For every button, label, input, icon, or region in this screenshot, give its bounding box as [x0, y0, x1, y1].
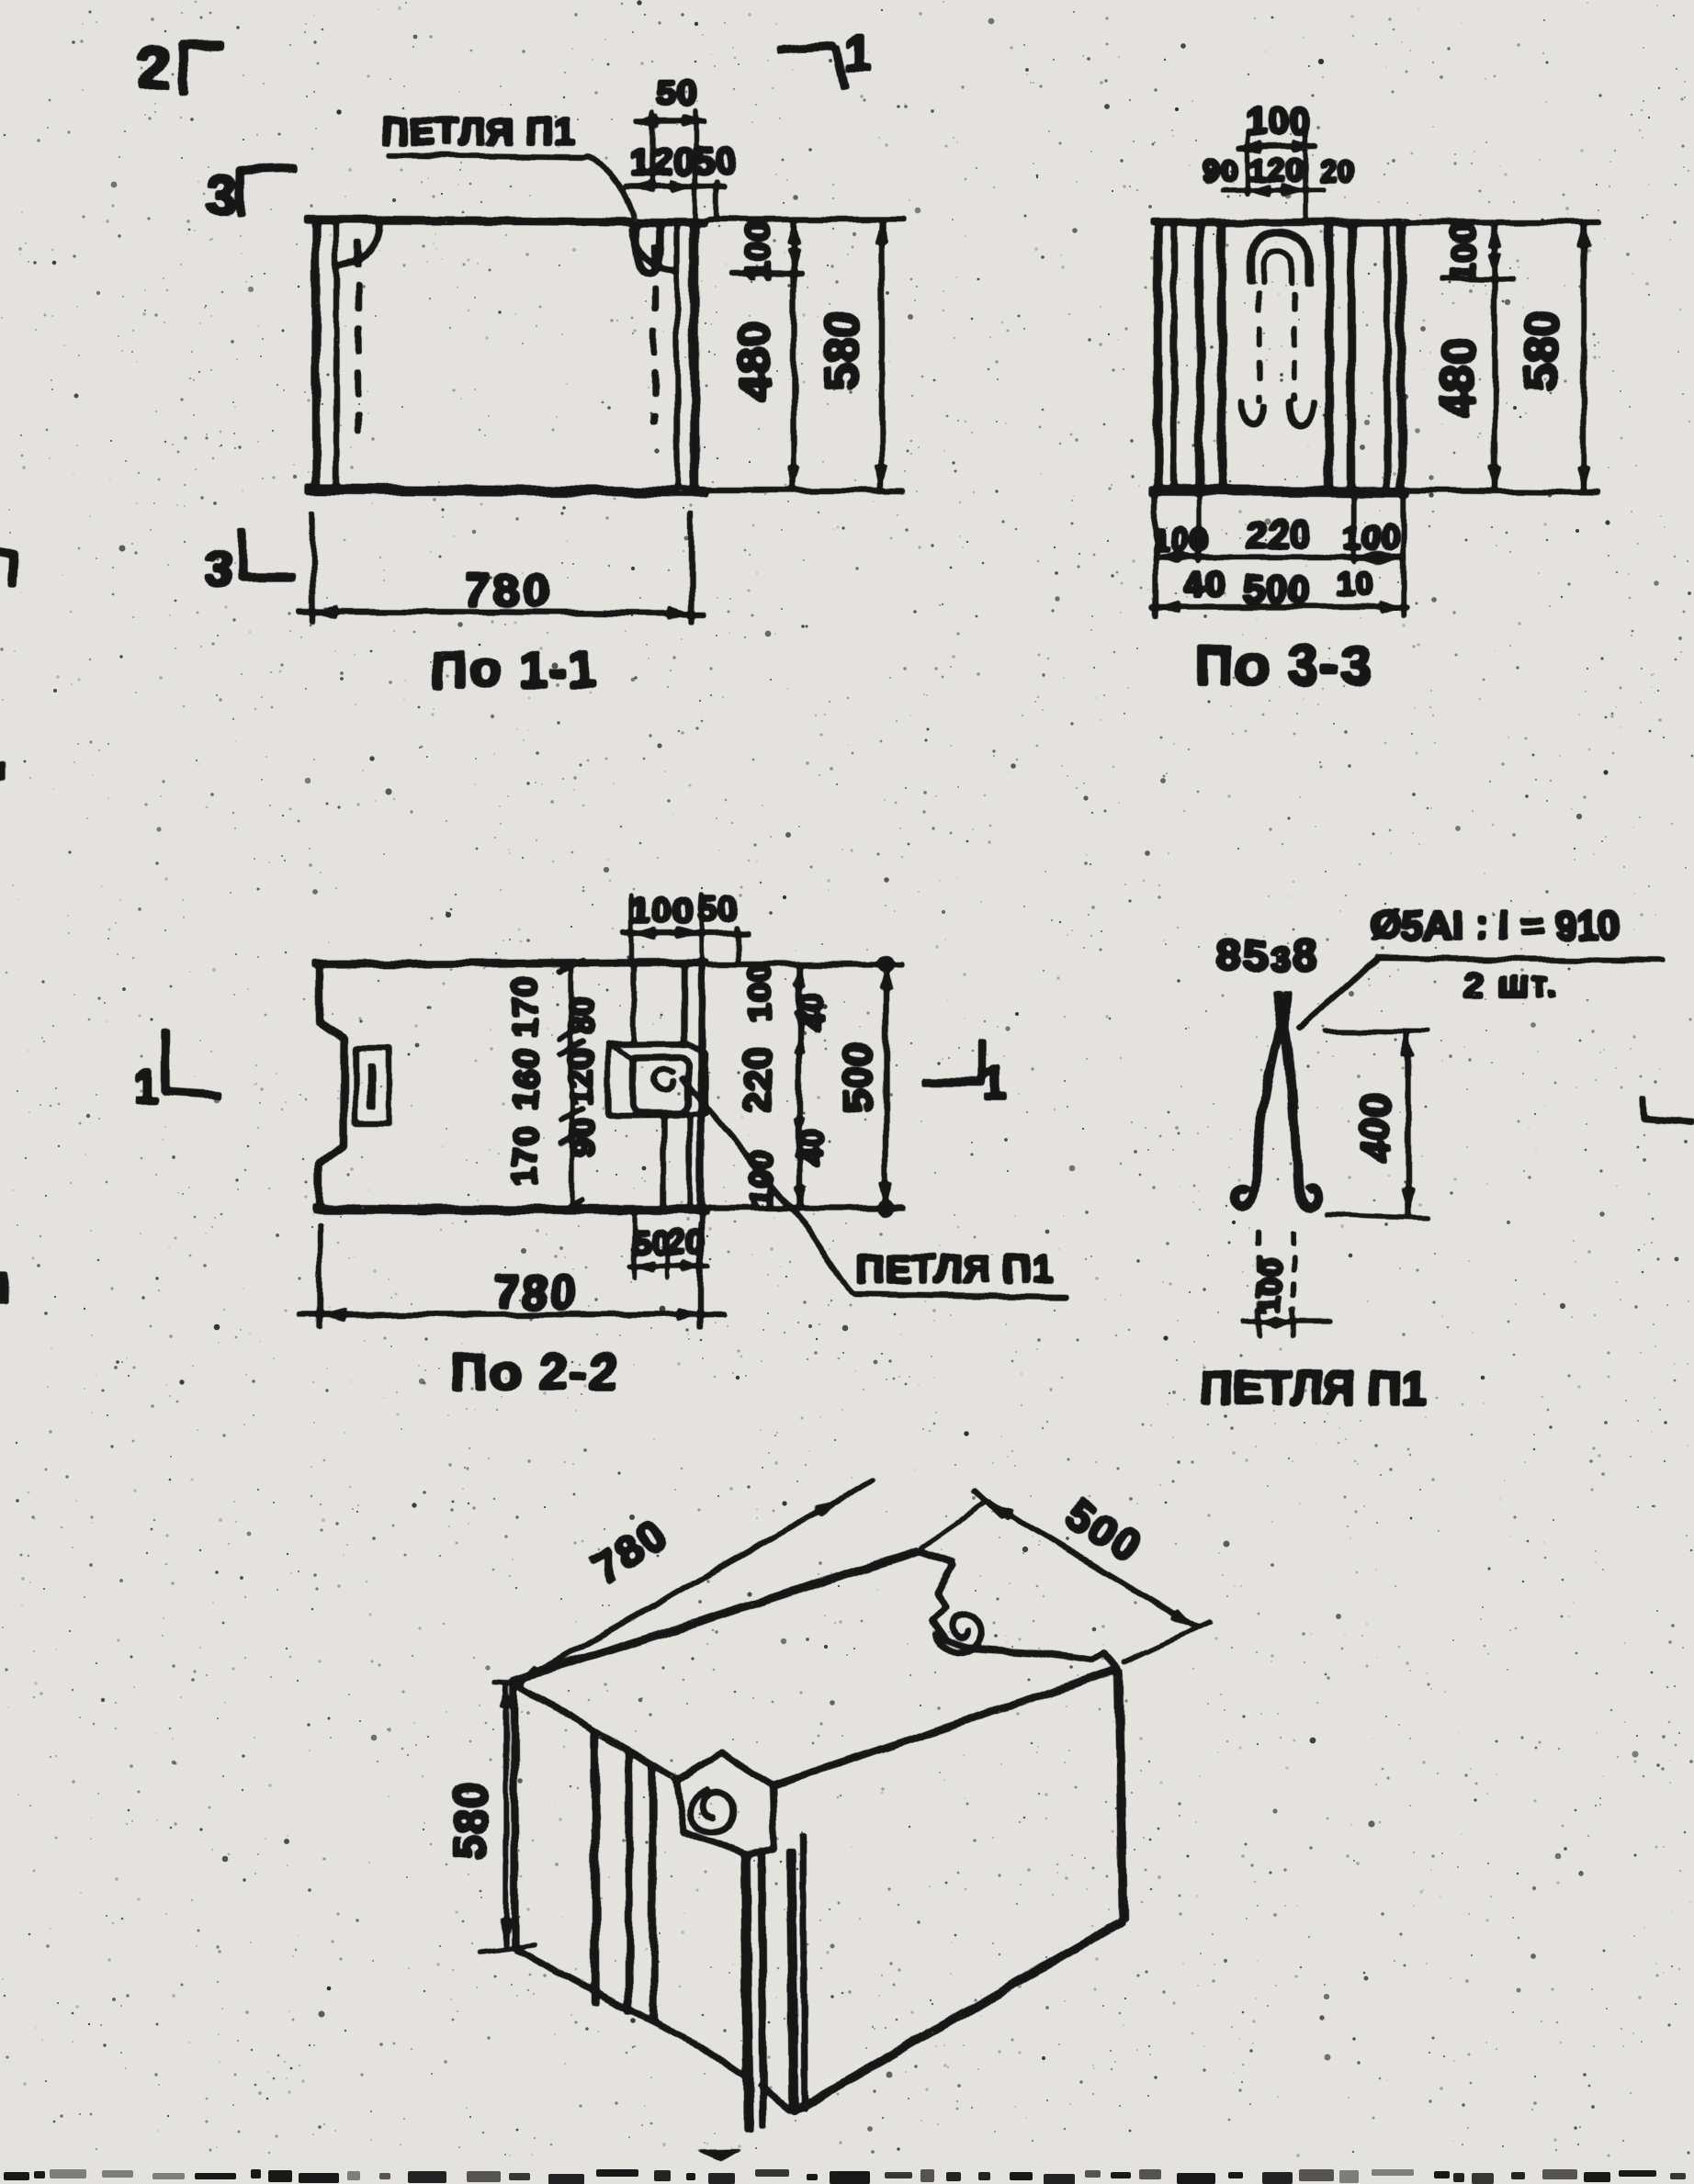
svg-text:100: 100 [1246, 102, 1310, 142]
svg-text:10: 10 [1336, 565, 1374, 602]
svg-text:580: 580 [1516, 310, 1567, 389]
svg-text:500: 500 [1243, 568, 1310, 611]
svg-text:40: 40 [793, 1129, 830, 1167]
svg-text:3: 3 [207, 165, 237, 225]
svg-text:170: 170 [506, 976, 545, 1037]
svg-text:50: 50 [632, 1224, 671, 1262]
svg-text:По 1-1: По 1-1 [431, 640, 599, 698]
svg-text:100: 100 [741, 963, 779, 1021]
svg-text:90: 90 [1202, 154, 1238, 189]
svg-text:220: 220 [1245, 512, 1312, 556]
svg-text:85з8: 85з8 [1216, 931, 1319, 980]
svg-text:100: 100 [740, 220, 778, 281]
svg-text:480: 480 [1432, 338, 1484, 417]
svg-text:580: 580 [816, 310, 867, 389]
svg-text:3: 3 [205, 542, 233, 597]
svg-text:50: 50 [657, 74, 697, 113]
svg-text:По 3-3: По 3-3 [1194, 635, 1373, 696]
svg-text:100: 100 [1151, 521, 1209, 558]
svg-text:ПЕТЛЯ П1: ПЕТЛЯ П1 [856, 1247, 1055, 1290]
svg-text:780: 780 [494, 1266, 579, 1318]
svg-text:120: 120 [1249, 153, 1304, 188]
svg-text:20: 20 [1319, 154, 1356, 189]
svg-text:120: 120 [631, 142, 695, 183]
svg-text:220: 220 [736, 1046, 779, 1113]
svg-text:40: 40 [1185, 566, 1225, 604]
svg-text:500: 500 [836, 1042, 881, 1112]
svg-text:120: 120 [562, 1048, 600, 1106]
svg-text:1: 1 [134, 1064, 160, 1112]
svg-text:Ø5АI : l = 910: Ø5АI : l = 910 [1371, 904, 1620, 948]
svg-text:80: 80 [563, 996, 601, 1035]
svg-text:100: 100 [1342, 519, 1400, 557]
svg-text:100: 100 [1253, 1258, 1288, 1313]
svg-text:2 шт.: 2 шт. [1464, 965, 1560, 1006]
svg-text:90: 90 [564, 1119, 602, 1157]
svg-text:1: 1 [982, 1057, 1009, 1109]
svg-text:40: 40 [792, 991, 830, 1030]
svg-text:780: 780 [464, 564, 552, 617]
svg-text:ПЕТЛЯ П1: ПЕТЛЯ П1 [382, 110, 576, 152]
svg-text:ПЕТЛЯ П1: ПЕТЛЯ П1 [1200, 1362, 1427, 1413]
svg-text:160: 160 [507, 1049, 546, 1109]
svg-text:480: 480 [728, 321, 780, 400]
svg-text:По 2-2: По 2-2 [451, 1343, 619, 1401]
svg-text:50: 50 [695, 141, 738, 182]
svg-text:580: 580 [446, 1781, 495, 1860]
svg-text:1: 1 [843, 26, 872, 81]
svg-text:100: 100 [629, 890, 694, 930]
svg-text:50: 50 [697, 888, 740, 929]
svg-text:400: 400 [1353, 1093, 1398, 1163]
svg-text:170: 170 [507, 1125, 546, 1186]
